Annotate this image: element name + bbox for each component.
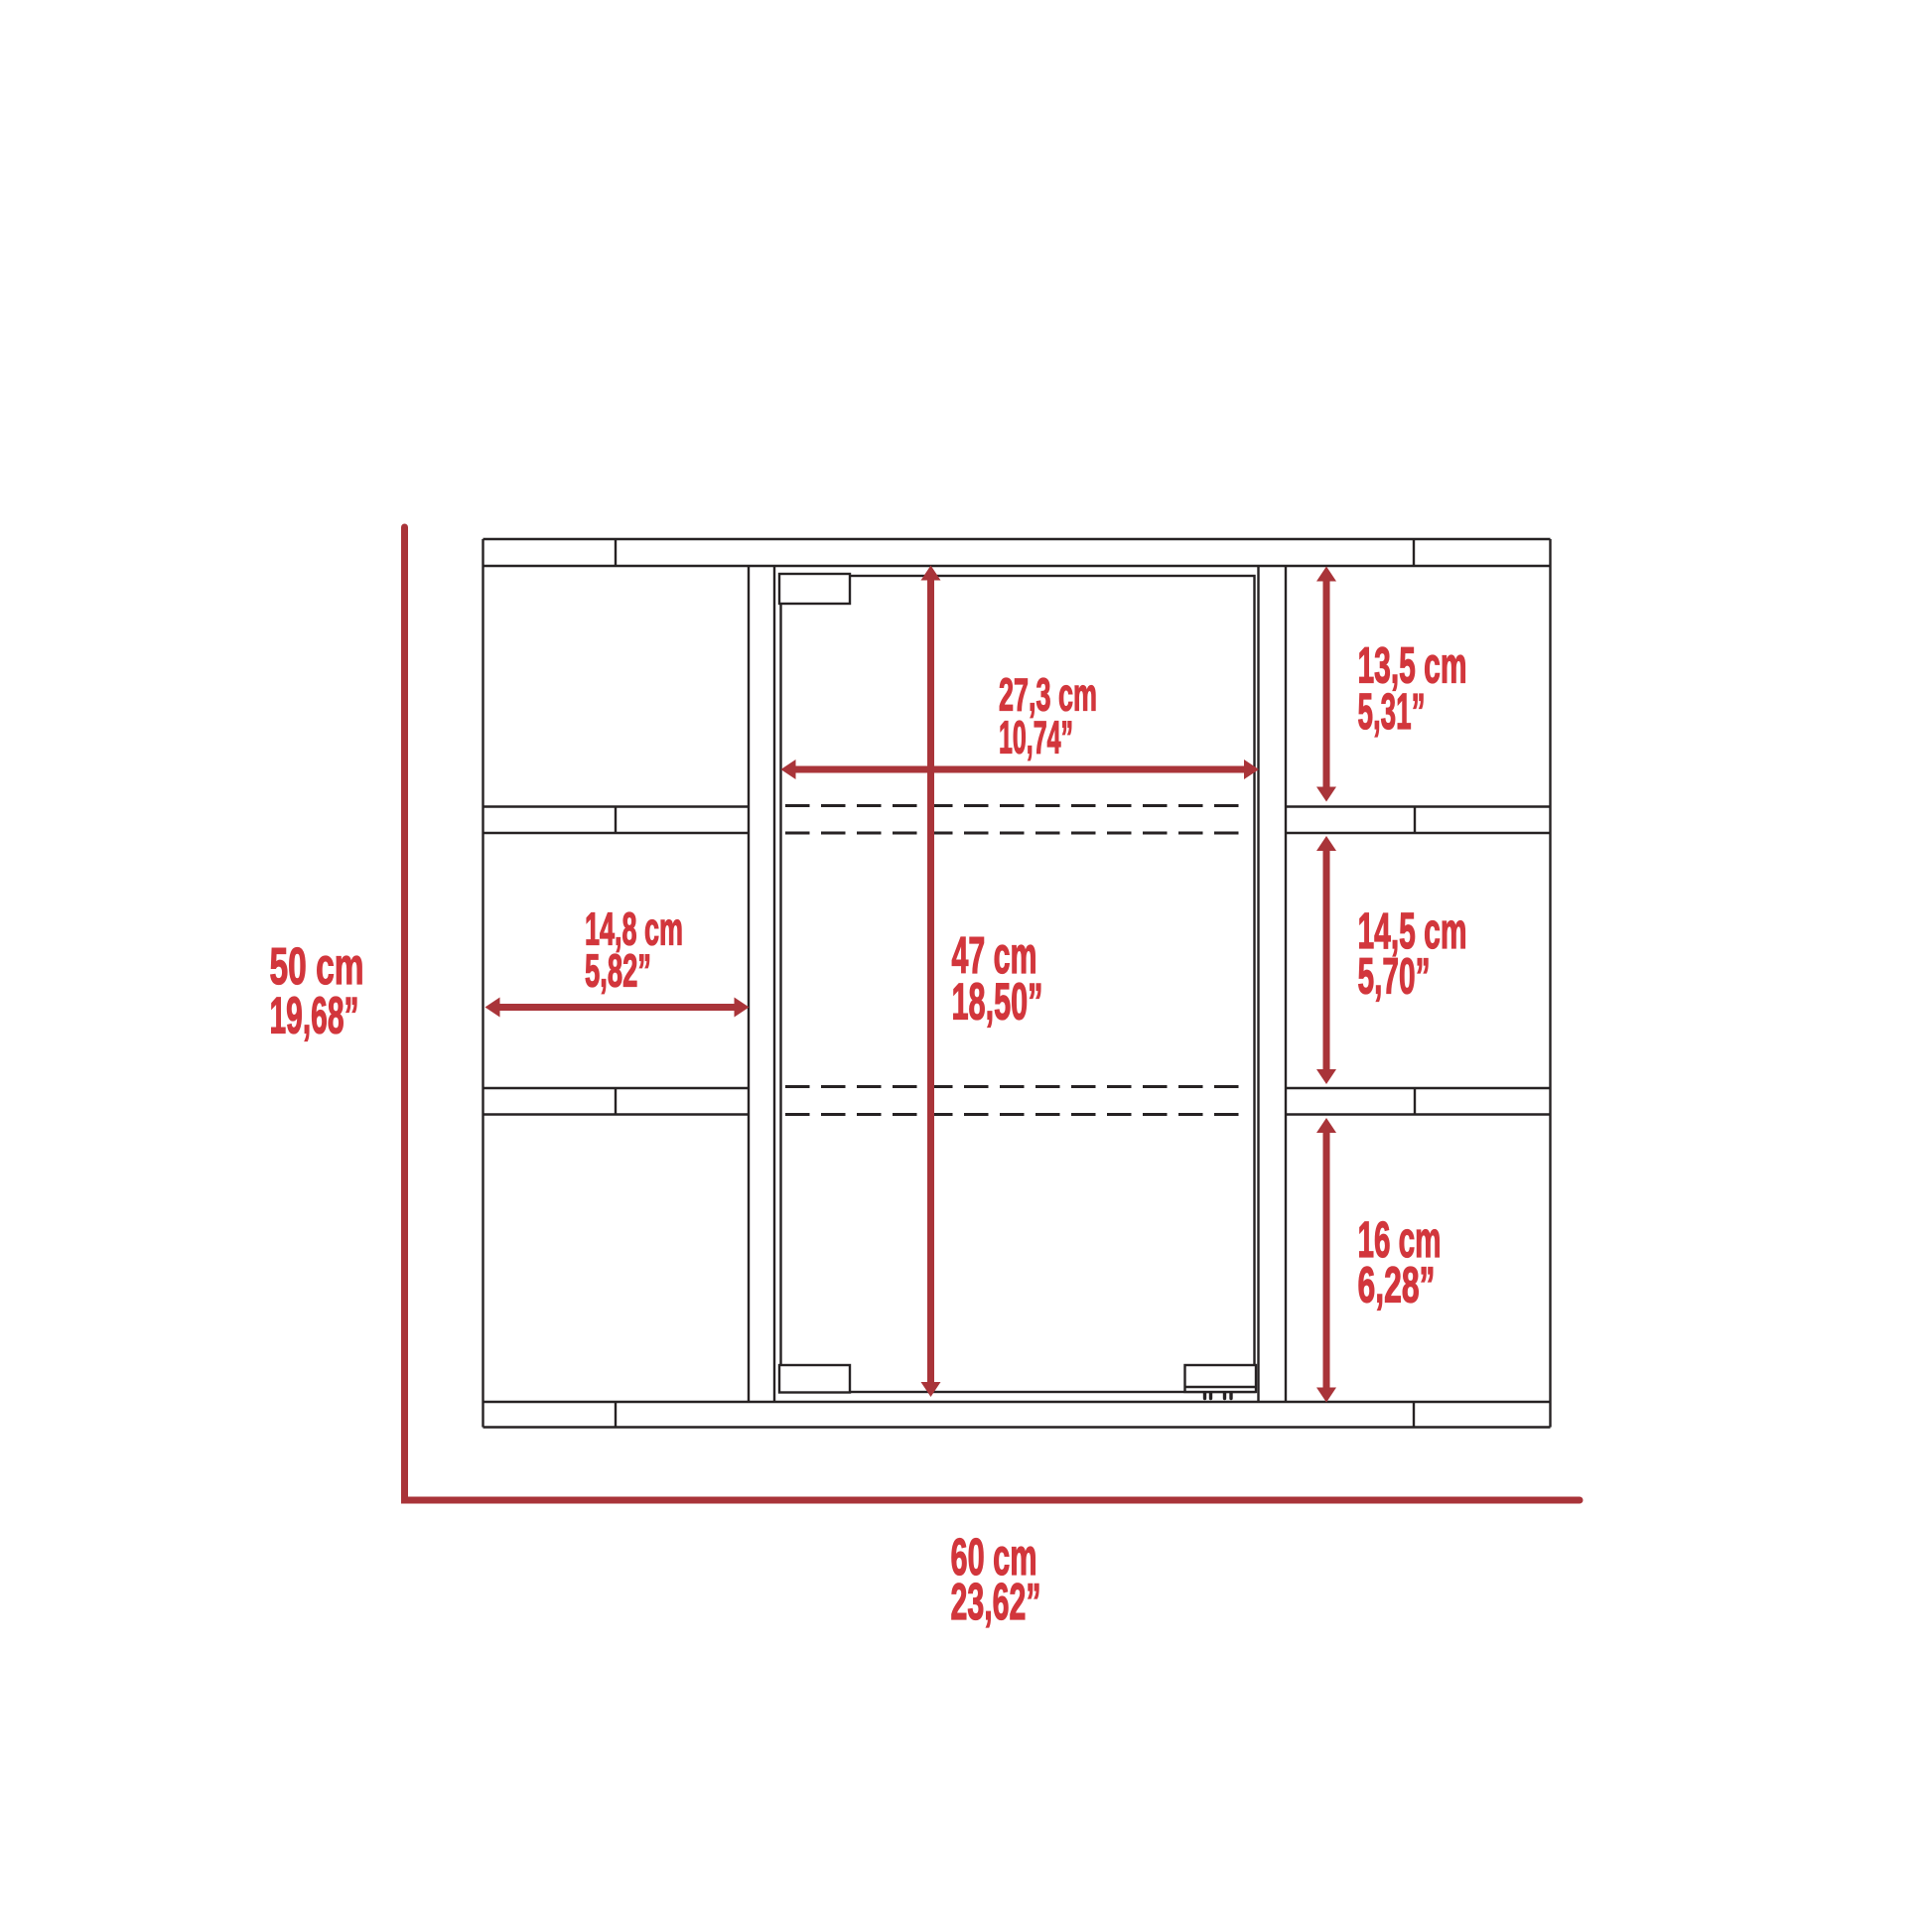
svg-text:5,31”: 5,31”	[1358, 683, 1426, 740]
svg-text:5,70”: 5,70”	[1358, 948, 1431, 1005]
svg-text:18,50”: 18,50”	[952, 974, 1043, 1032]
svg-text:5,82”: 5,82”	[585, 945, 651, 997]
svg-text:10,74”: 10,74”	[999, 712, 1073, 763]
svg-text:6,28”: 6,28”	[1358, 1257, 1436, 1313]
svg-text:19,68”: 19,68”	[270, 988, 359, 1045]
svg-text:23,62”: 23,62”	[951, 1574, 1041, 1631]
